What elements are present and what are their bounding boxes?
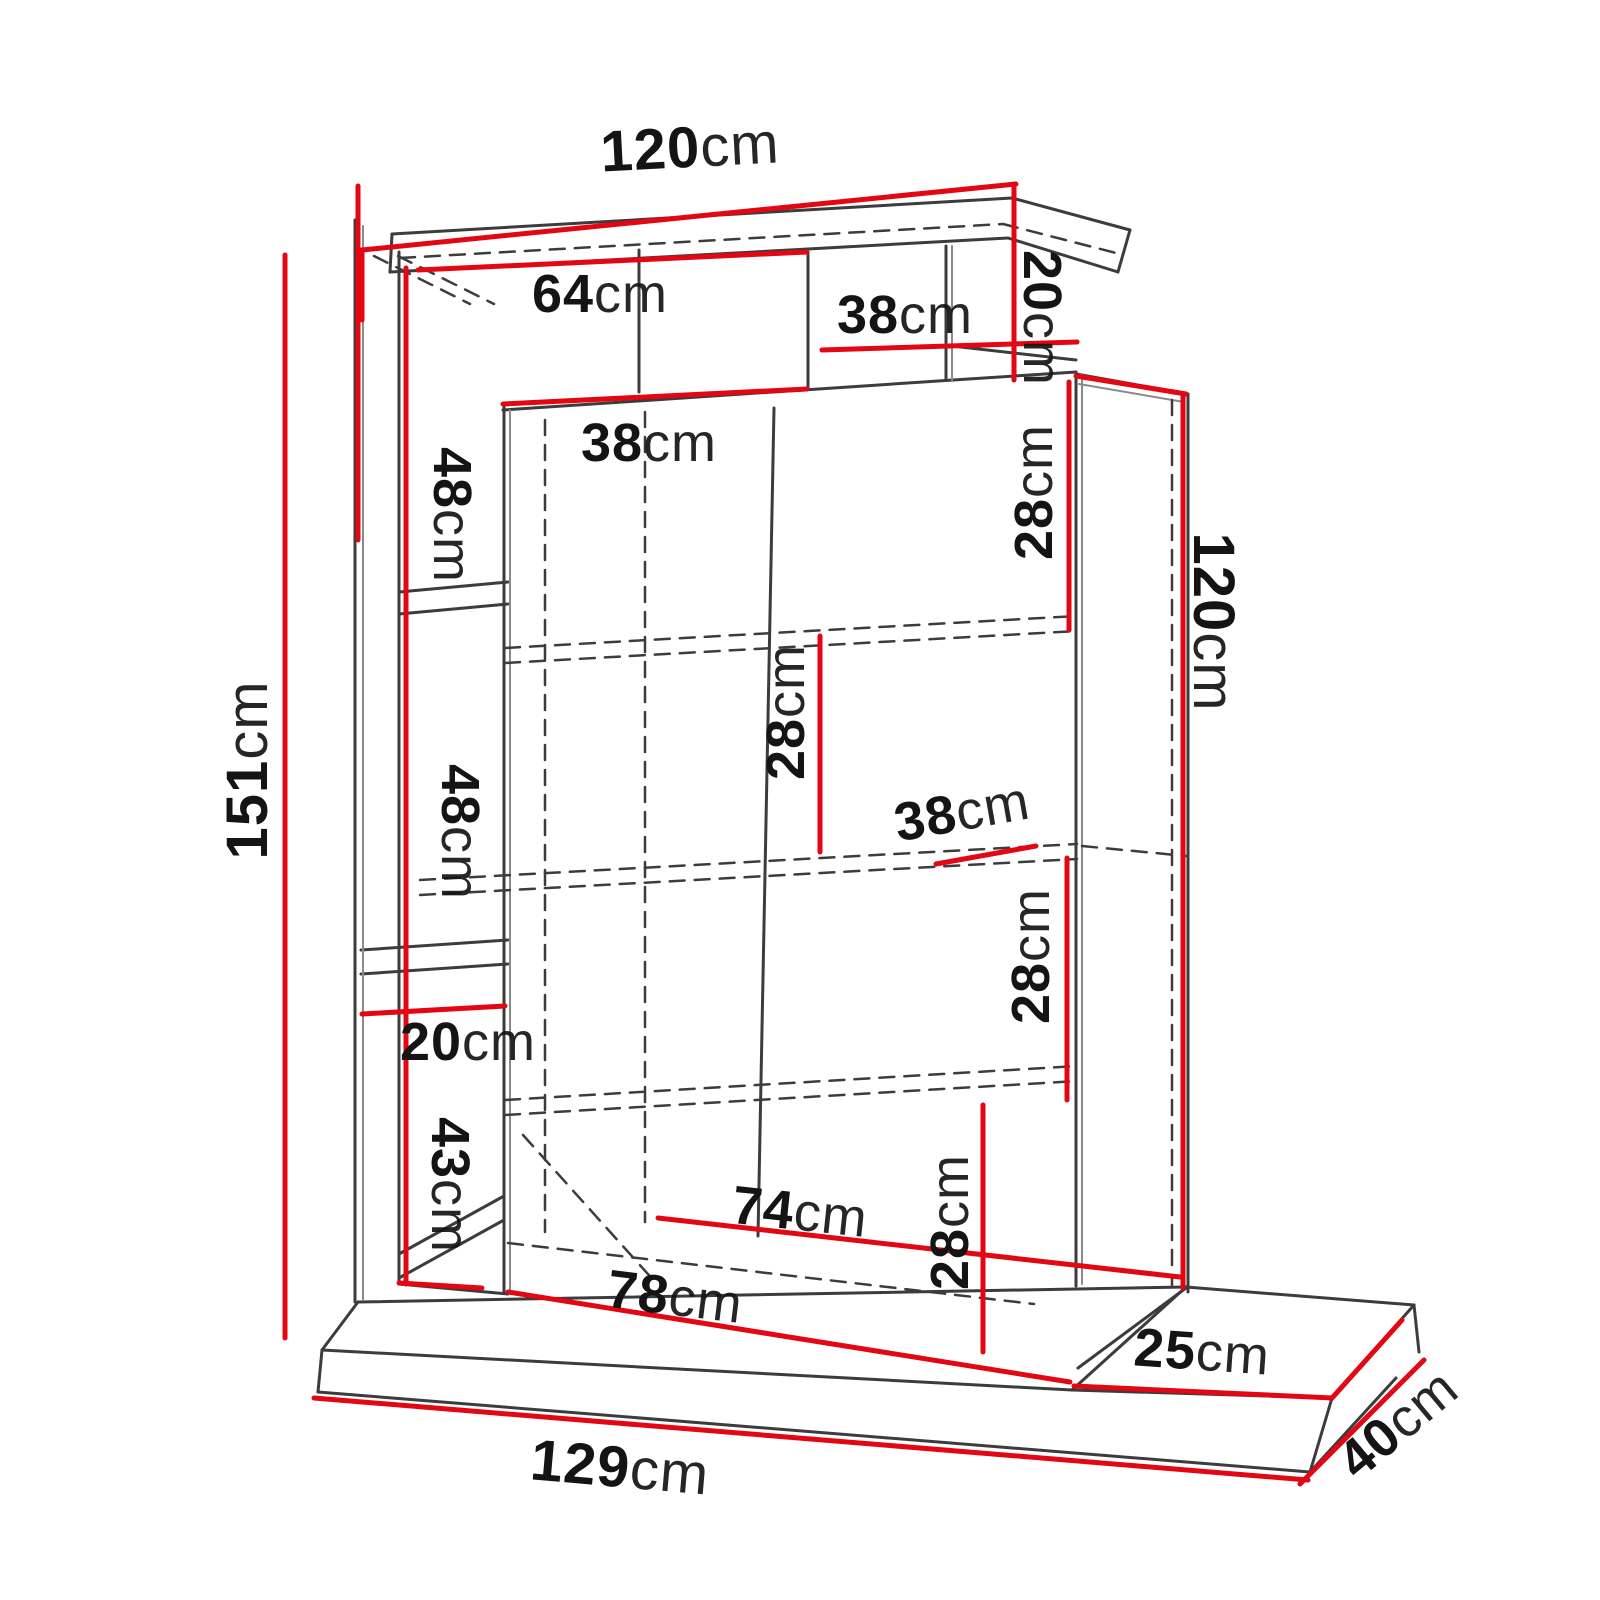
dim-label-base-width: 129cm <box>528 1431 711 1504</box>
dim-label-left-col-bottom: 43cm <box>423 1117 477 1253</box>
dim-label-top-width: 120cm <box>599 114 781 181</box>
dim-label-bottom-height: 28cm <box>923 1154 977 1290</box>
dim-label-niche-left-width: 64cm <box>532 267 668 321</box>
dim-label-right-height: 120cm <box>1184 532 1242 711</box>
dim-label-left-col-mid: 48cm <box>433 764 487 900</box>
dim-label-mid-shelf: 28cm <box>759 644 813 780</box>
dim-label-left-col-gap: 20cm <box>400 1015 536 1069</box>
dim-label-right-shelf-top: 28cm <box>1007 424 1061 560</box>
dim-label-niche-top-width: 38cm <box>837 288 973 342</box>
dim-label-top-right-height: 20cm <box>1015 250 1069 386</box>
dim-label-cabinet-top-depth: 38cm <box>581 416 717 470</box>
dim-label-base-right-depth: 25cm <box>1132 1320 1271 1383</box>
dim-label-bottom-inner-width: 74cm <box>730 1178 871 1246</box>
furniture-dimension-diagram: 120cm 64cm 38cm 20cm 38cm 48cm 28cm 120c… <box>0 0 1600 1600</box>
dim-label-total-height: 151cm <box>219 680 277 859</box>
dim-label-right-shelf-low: 28cm <box>1004 888 1058 1024</box>
dim-label-left-col-top: 48cm <box>425 447 479 583</box>
